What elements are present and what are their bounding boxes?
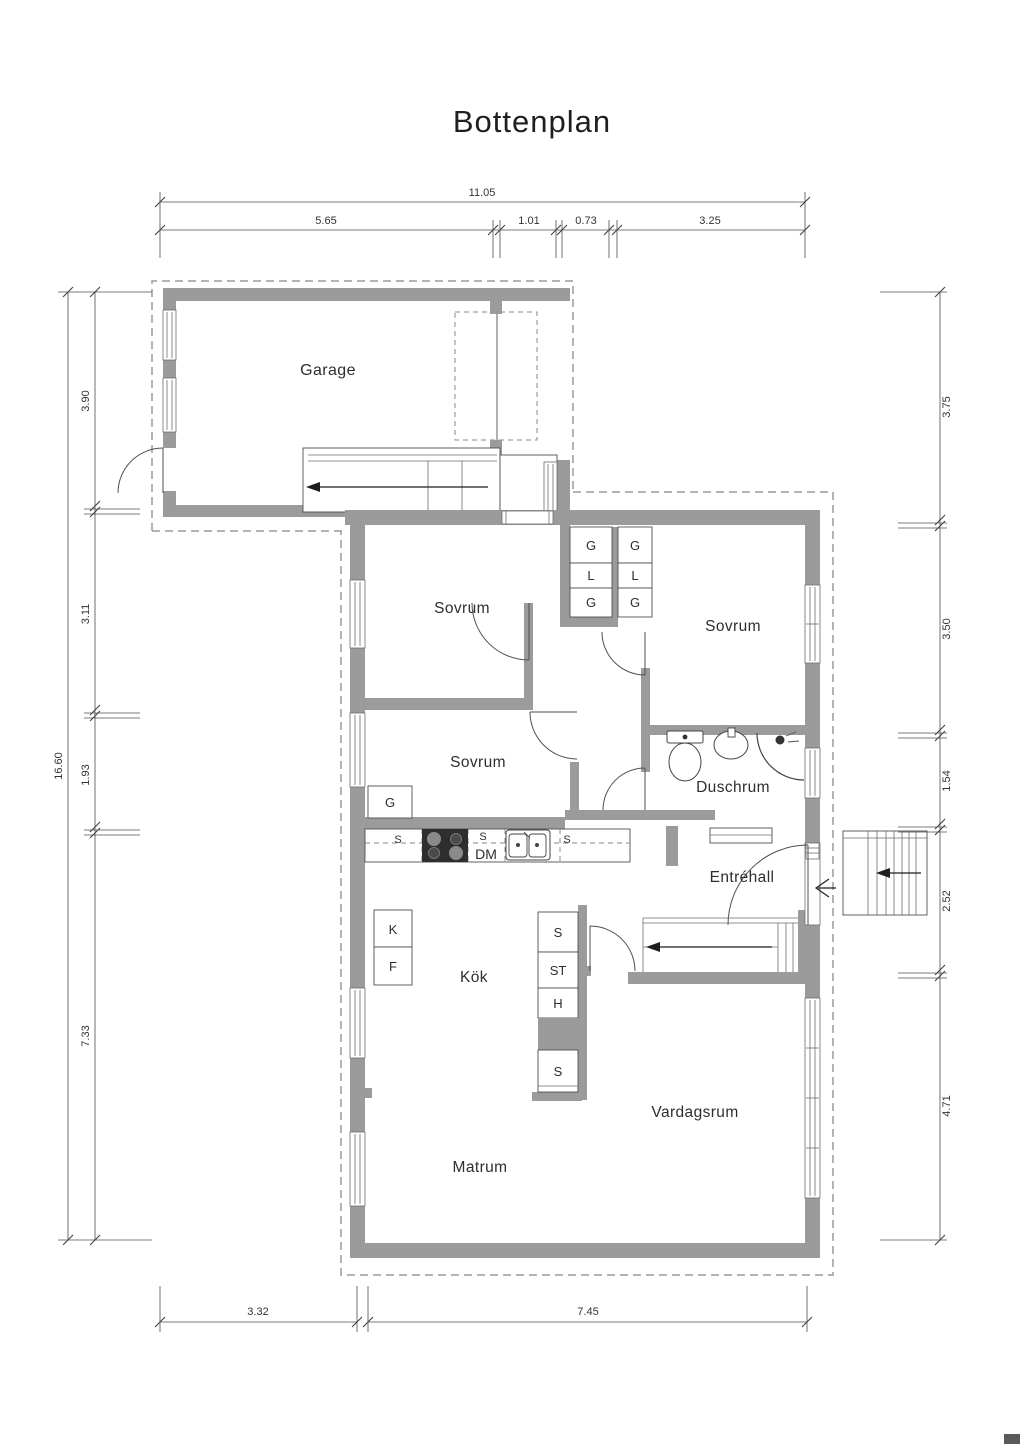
cabinet-label: K	[389, 922, 398, 937]
dimension-bottom: 3.32 7.45	[155, 1286, 812, 1332]
dim-segment: 1.93	[80, 764, 92, 785]
garage-roof-opening	[455, 312, 537, 440]
room-label-matrum: Matrum	[453, 1159, 508, 1176]
floorplan-drawing: G L G G L G G K F S ST H S	[0, 0, 1024, 1448]
closet-label: G	[630, 595, 640, 610]
closet-label: G	[385, 795, 395, 810]
dim-segment: 3.32	[247, 1306, 268, 1318]
counter-label: S	[479, 831, 486, 843]
dim-segment: 3.11	[80, 604, 92, 625]
cabinet-label: H	[553, 996, 562, 1011]
room-label-duschrum: Duschrum	[696, 779, 770, 796]
window	[350, 1132, 365, 1206]
dim-segment: 3.25	[699, 215, 720, 227]
room-label-kok: Kök	[460, 969, 488, 986]
dim-segment: 3.90	[80, 390, 92, 411]
dim-segment: 5.65	[315, 215, 336, 227]
cabinet-label: S	[554, 925, 563, 940]
window	[350, 580, 365, 648]
closet-label: G	[630, 538, 640, 553]
window	[163, 378, 176, 432]
dim-segment: 1.54	[941, 770, 953, 791]
hall-bench	[710, 828, 772, 843]
window	[805, 748, 820, 798]
dim-segment: 1.01	[518, 215, 539, 227]
closet-label: L	[631, 568, 638, 583]
garage-stairs	[303, 448, 557, 512]
room-label-sovrum-3: Sovrum	[450, 754, 506, 771]
window	[544, 462, 557, 512]
dimension-left: 16.60 3.90 3.11 1.93 7.33	[53, 287, 152, 1245]
dim-total-left: 16.60	[53, 752, 65, 780]
house-windows	[350, 580, 820, 1206]
room-label-entrehall: Entréhall	[710, 869, 775, 886]
cabinet-label: S	[554, 1064, 563, 1079]
window	[350, 988, 365, 1058]
door-arc-kok	[590, 926, 635, 971]
dim-segment: 4.71	[941, 1095, 953, 1116]
dim-total-top: 11.05	[469, 187, 496, 199]
counter-label: S	[563, 834, 570, 846]
dim-segment: 3.50	[941, 618, 953, 639]
top-wall-opening	[502, 511, 553, 524]
kitchen-counter: S S DM S	[365, 829, 630, 862]
kitchen-sink-icon	[506, 830, 550, 860]
dim-segment: 7.33	[80, 1025, 92, 1046]
dim-segment: 2.52	[941, 890, 953, 911]
stove-icon	[422, 829, 468, 862]
garage-door	[118, 448, 163, 493]
cabinet-label: ST	[550, 963, 567, 978]
dimension-top: 11.05 5.65 1.01 0.73 3.25	[155, 187, 810, 258]
cabinet-label: F	[389, 959, 397, 974]
dimension-right: 3.75 3.50 1.54 2.52 4.71	[880, 287, 953, 1245]
closets: G L G G L G G K F S ST H S	[368, 527, 652, 1092]
watermark	[1004, 1434, 1020, 1444]
counter-label: S	[394, 834, 401, 846]
basement-stairs	[643, 918, 798, 972]
toilet-icon	[667, 731, 703, 781]
door-arc	[118, 448, 163, 493]
dim-segment: 0.73	[575, 215, 596, 227]
closet-label: G	[586, 538, 596, 553]
room-label-sovrum-1: Sovrum	[434, 600, 490, 617]
entry-stairs	[843, 831, 927, 915]
dishwasher-label: DM	[475, 846, 497, 862]
dim-segment: 3.75	[941, 396, 953, 417]
door-arc-duschrum	[603, 768, 645, 810]
door-arc-sovrum2	[530, 712, 577, 759]
floorplan-page: Bottenplan	[0, 0, 1024, 1448]
window	[163, 310, 176, 360]
dim-segment: 7.45	[577, 1306, 598, 1318]
room-label-sovrum-2: Sovrum	[705, 618, 761, 635]
room-label-vardagsrum: Vardagsrum	[651, 1104, 738, 1121]
door-arc-sovrum3	[602, 632, 645, 675]
closet-label: G	[586, 595, 596, 610]
window	[350, 713, 365, 787]
shower-icon	[757, 732, 804, 780]
closet-label: L	[587, 568, 594, 583]
dashed-outline	[152, 281, 833, 1275]
room-label-garage: Garage	[300, 362, 356, 379]
